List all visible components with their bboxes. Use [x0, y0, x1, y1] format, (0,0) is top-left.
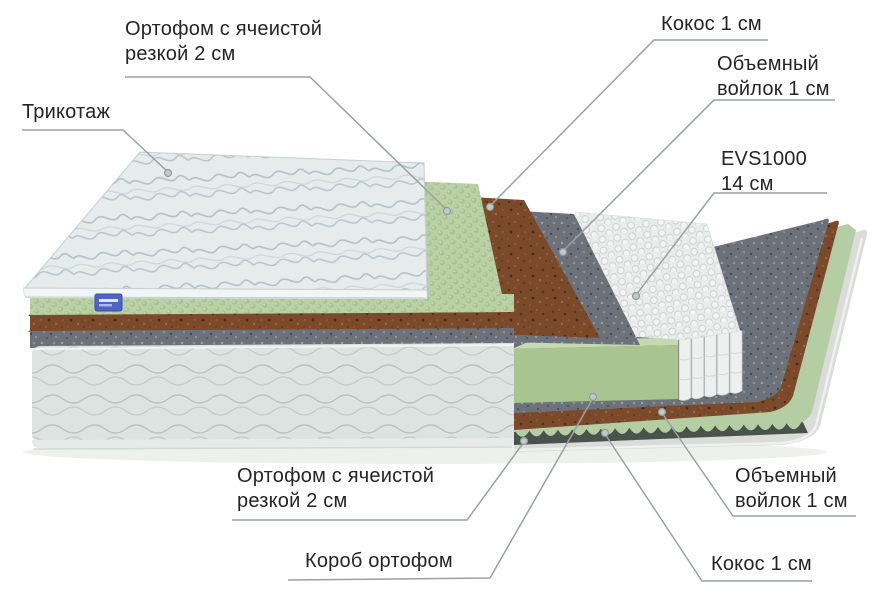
leader-dot [659, 409, 666, 416]
mattress-base-box [32, 343, 514, 449]
label-springs: EVS1000 14 см [721, 147, 807, 197]
leader-dot [633, 293, 640, 300]
label-line: Ортофом с ячеистой [237, 464, 434, 489]
label-line: Кокос 1 см [711, 552, 812, 577]
label-line: Короб ортофом [305, 549, 453, 574]
leader-dot [444, 208, 451, 215]
leader-dot [560, 249, 567, 256]
label-orthofoam-top: Ортофом с ячеистой резкой 2 см [125, 17, 322, 67]
label-line: войлок 1 см [735, 489, 848, 514]
label-felt-bottom: Объемный войлок 1 см [735, 464, 848, 514]
leader-dot [487, 204, 494, 211]
leader-dot [521, 438, 528, 445]
label-line: войлок 1 см [717, 77, 830, 102]
label-line: Ортофом с ячеистой [125, 17, 322, 42]
label-line: Трикотаж [22, 100, 110, 125]
label-line: резкой 2 см [237, 489, 434, 514]
leader-dot [165, 170, 172, 177]
label-coconut-top: Кокос 1 см [661, 12, 762, 37]
mattress-layers-diagram: Трикотаж Ортофом с ячеистой резкой 2 см … [0, 0, 874, 599]
label-coconut-bottom: Кокос 1 см [711, 552, 812, 577]
leader-dot [602, 430, 609, 437]
label-line: Объемный [735, 464, 848, 489]
label-felt-top: Объемный войлок 1 см [717, 52, 830, 102]
layer-tricot-top [24, 152, 427, 299]
foam-box-block [512, 337, 698, 403]
label-line: EVS1000 [721, 147, 807, 172]
label-box: Короб ортофом [305, 549, 453, 574]
label-line: 14 см [721, 172, 807, 197]
label-line: Объемный [717, 52, 830, 77]
label-line: Кокос 1 см [661, 12, 762, 37]
label-orthofoam-bottom: Ортофом с ячеистой резкой 2 см [237, 464, 434, 514]
label-line: резкой 2 см [125, 42, 322, 67]
leader-dot [590, 394, 597, 401]
brand-badge [95, 294, 122, 311]
label-tricot: Трикотаж [22, 100, 110, 125]
